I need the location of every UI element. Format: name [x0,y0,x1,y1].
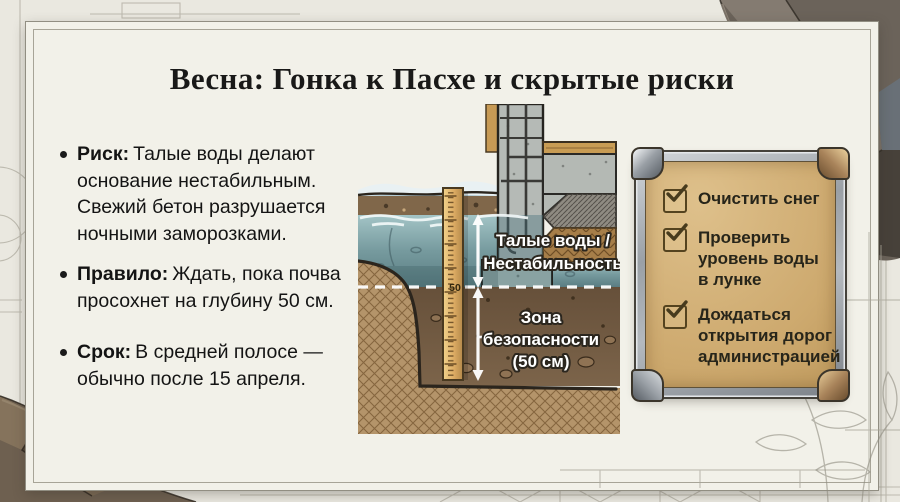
ruler: 50 [443,188,468,380]
bullet-label: Правило: [77,263,168,285]
checkmark-icon [665,223,689,243]
bullet-item-rule: Правило:Ждать, пока почва просохнет на г… [60,261,360,314]
plaque-corner-top-right [817,147,850,180]
bullet-item-risk: Риск:Талые воды делают основание нестаби… [60,141,360,247]
slide-title: Весна: Гонка к Пасхе и скрытые риски [26,61,878,97]
svg-text:(50 см): (50 см) [513,352,570,371]
checkbox-checked [663,305,687,329]
plaque-corner-top-left [631,147,664,180]
svg-text:безопасности: безопасности [483,330,599,349]
bullet-label: Срок: [77,341,131,363]
checklist-item-label: Проверить уровень воды в лунке [698,227,826,290]
bullet-marker [60,151,67,158]
bullet-marker [60,271,67,278]
checklist-item-label: Очистить снег [698,188,826,209]
soil-diagram: 50 Талые воды / Нестабильность Зона безо… [358,104,620,434]
checklist-item: Проверить уровень воды в лунке [663,227,826,290]
bullet-item-deadline: Срок:В средней полосе — обычно после 15 … [60,339,360,392]
checkmark-icon [665,184,689,204]
bullet-marker [60,349,67,356]
checklist: Очистить снег Проверить уровень воды в л… [645,161,836,388]
plaque-corner-bottom-left [631,369,664,402]
checkbox-checked [663,189,687,213]
formwork-board [486,104,498,152]
checklist-item-label: Дождаться открытия дорог администрацией [698,304,840,367]
bullet-list: Риск:Талые воды делают основание нестаби… [60,141,360,392]
checklist-item: Дождаться открытия дорог администрацией [663,304,826,367]
svg-text:Зона: Зона [521,308,562,327]
foundation-slab [543,154,616,194]
checklist-item: Очистить снег [663,188,826,213]
plaque-corner-bottom-right [817,369,850,402]
bullet-label: Риск: [77,143,129,165]
svg-text:Талые воды /: Талые воды / [496,231,610,250]
checkbox-checked [663,228,687,252]
checklist-plaque: Очистить снег Проверить уровень воды в л… [636,152,845,397]
checkmark-icon [665,300,689,320]
svg-text:Нестабильность: Нестабильность [483,254,620,273]
slide: Весна: Гонка к Пасхе и скрытые риски Рис… [0,0,900,502]
ruler-50-mark: 50 [449,282,461,294]
